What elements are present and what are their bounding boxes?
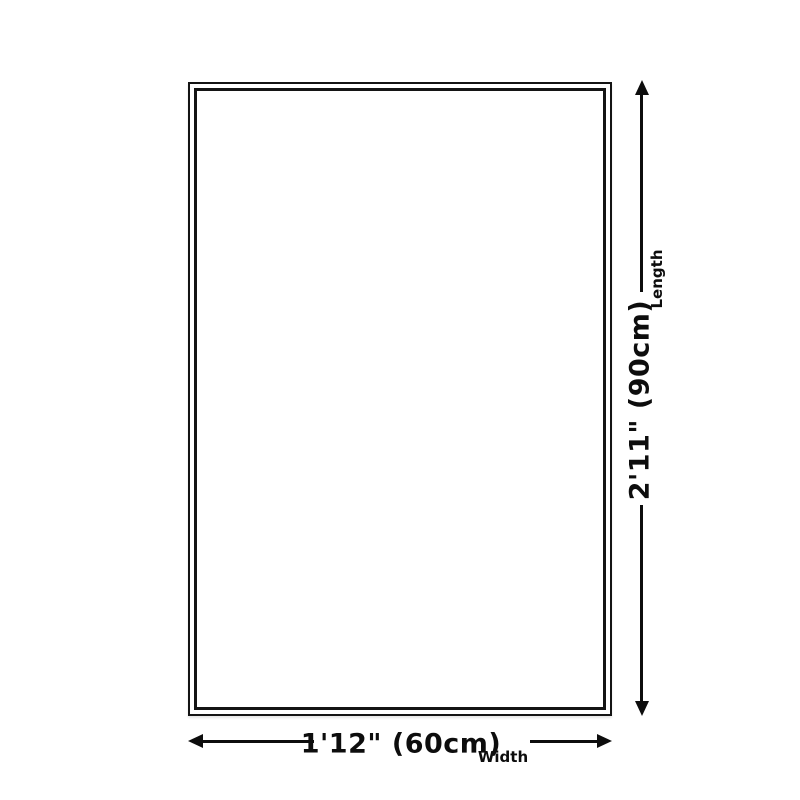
arrow-left-icon	[188, 734, 203, 748]
width-line-left-segment	[202, 740, 314, 743]
arrow-right-icon	[597, 734, 612, 748]
arrow-up-icon	[635, 80, 649, 95]
length-value-label: 2'11" (90cm)	[625, 300, 656, 500]
length-line-lower-segment	[640, 505, 643, 702]
length-axis-label: Length	[648, 250, 666, 309]
length-line-upper-segment	[640, 94, 643, 292]
arrow-down-icon	[635, 701, 649, 716]
rug-outline-inner	[194, 88, 606, 710]
width-axis-label: Width	[478, 748, 528, 766]
width-line-right-segment	[530, 740, 598, 743]
width-value-label: 1'12" (60cm)	[301, 729, 501, 760]
size-diagram: 2'11" (90cm) Length 1'12" (60cm) Width	[0, 0, 800, 800]
rug-outline-outer	[188, 82, 612, 716]
